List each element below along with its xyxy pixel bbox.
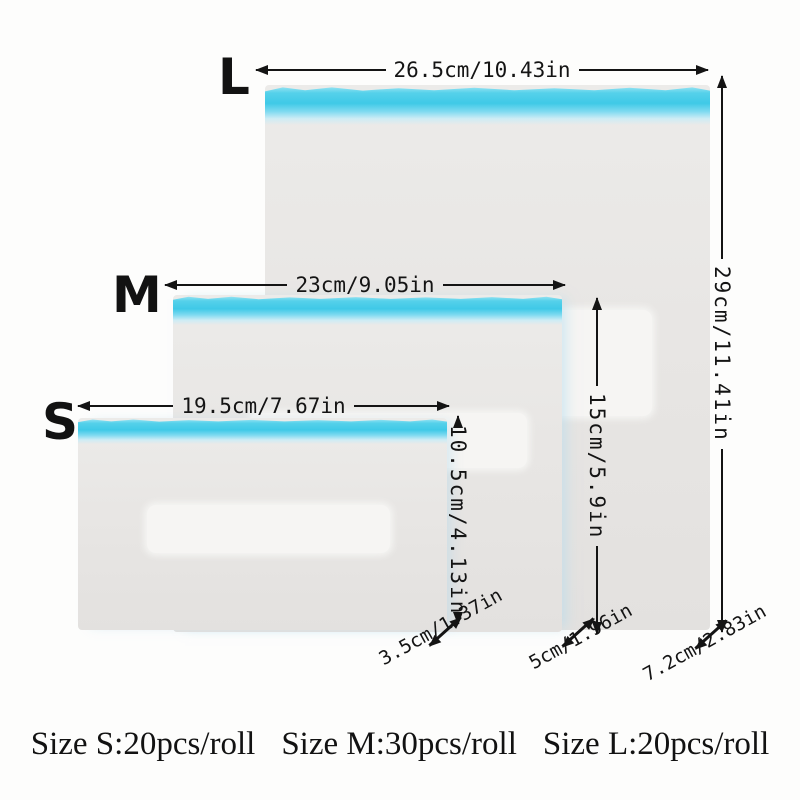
size-letter-s: S — [42, 397, 78, 447]
small-width-dimension: 19.5cm/7.67in — [78, 393, 449, 419]
arrow-line-left-icon — [256, 69, 386, 72]
bag-medium-zipper-strip — [173, 295, 562, 325]
size-letter-l: L — [218, 52, 250, 102]
small-width-value: 19.5cm/7.67in — [173, 394, 353, 418]
medium-width-dimension: 23cm/9.05in — [165, 272, 565, 298]
caption-size-l: Size L:20pcs/roll — [543, 726, 769, 763]
arrow-line-down-icon — [721, 449, 724, 632]
bag-small — [78, 418, 447, 630]
medium-height-value: 15cm/5.9in — [585, 386, 609, 546]
arrow-line-up-icon — [457, 416, 460, 418]
arrow-line-up-icon — [721, 76, 724, 259]
bag-small-zipper-strip — [78, 418, 447, 444]
arrow-line-right-icon — [354, 405, 449, 408]
arrow-line-left-icon — [78, 405, 173, 408]
bag-large-zipper-strip — [265, 85, 710, 125]
small-height-value: 10.5cm/4.13in — [446, 418, 470, 622]
product-dimension-diagram: L M S 26.5cm/10.43in 23cm/9.05in 19.5cm/… — [0, 0, 800, 800]
bag-small-label-patch — [147, 505, 390, 553]
large-height-value: 29cm/11.41in — [710, 259, 734, 449]
large-width-value: 26.5cm/10.43in — [386, 58, 579, 82]
arrow-line-right-icon — [579, 69, 709, 72]
medium-width-value: 23cm/9.05in — [287, 273, 442, 297]
arrow-line-up-icon — [596, 298, 599, 386]
large-width-dimension: 26.5cm/10.43in — [256, 57, 708, 83]
arrow-line-right-icon — [443, 284, 565, 287]
medium-height-dimension: 15cm/5.9in — [582, 298, 612, 634]
caption-size-s: Size S:20pcs/roll — [31, 726, 256, 763]
large-height-dimension: 29cm/11.41in — [707, 76, 737, 632]
small-height-dimension: 10.5cm/4.13in — [443, 416, 473, 624]
caption-size-m: Size M:30pcs/roll — [281, 726, 517, 763]
pack-quantity-caption: Size S:20pcs/roll Size M:30pcs/roll Size… — [0, 726, 800, 763]
arrow-line-left-icon — [165, 284, 287, 287]
size-letter-m: M — [112, 270, 162, 320]
